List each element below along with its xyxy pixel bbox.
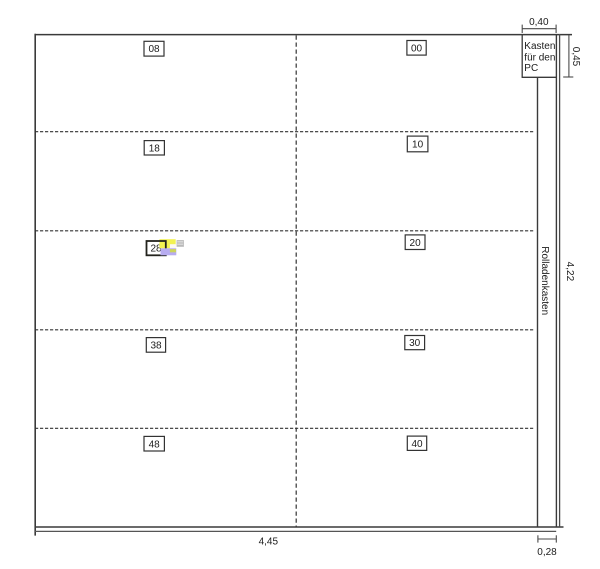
svg-text:0,28: 0,28 [537, 547, 557, 558]
svg-text:48: 48 [149, 439, 161, 450]
svg-text:für den: für den [524, 52, 555, 63]
svg-text:40: 40 [411, 439, 423, 450]
svg-text:Kasten: Kasten [524, 41, 555, 52]
svg-text:08: 08 [148, 44, 160, 55]
svg-text:18: 18 [149, 143, 161, 154]
svg-text:PC: PC [524, 63, 538, 74]
svg-text:20: 20 [410, 238, 422, 249]
svg-text:00: 00 [411, 43, 423, 54]
svg-text:30: 30 [409, 338, 421, 349]
svg-text:10: 10 [412, 140, 424, 151]
svg-text:4,45: 4,45 [259, 537, 279, 548]
svg-text:0,40: 0,40 [529, 17, 549, 28]
svg-text:0,45: 0,45 [570, 47, 581, 67]
svg-text:38: 38 [150, 341, 162, 352]
svg-text:4,22: 4,22 [564, 262, 575, 282]
svg-text:Rolladenkasten: Rolladenkasten [539, 246, 550, 315]
